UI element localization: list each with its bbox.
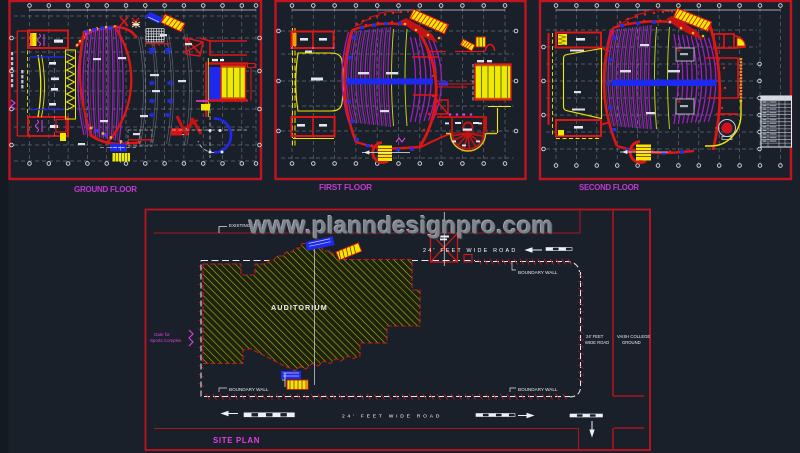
svg-text:24' FEET WIDE ROAD: 24' FEET WIDE ROAD — [423, 248, 517, 254]
svg-text:WIDE ROAD: WIDE ROAD — [585, 340, 609, 345]
svg-text:Gate for: Gate for — [154, 332, 170, 337]
svg-text:SITE PLAN: SITE PLAN — [213, 436, 260, 445]
svg-text:VAISH COLLEGE: VAISH COLLEGE — [617, 334, 650, 339]
svg-text:Sports Complex: Sports Complex — [150, 338, 182, 343]
svg-text:www.planndesignpro.com: www.planndesignpro.com — [248, 212, 554, 239]
svg-text:AUDITORIUM: AUDITORIUM — [271, 303, 328, 312]
svg-text:24' FEET WIDE ROAD: 24' FEET WIDE ROAD — [342, 414, 442, 420]
svg-text:FIRST FLOOR: FIRST FLOOR — [319, 183, 372, 192]
svg-text:GROUND FLOOR: GROUND FLOOR — [74, 185, 137, 194]
svg-text:BOUNDARY WALL: BOUNDARY WALL — [229, 387, 269, 392]
svg-text:GROUND: GROUND — [622, 340, 641, 345]
svg-text:BOUNDARY WALL: BOUNDARY WALL — [518, 387, 558, 392]
svg-text:BOUNDARY WALL: BOUNDARY WALL — [518, 270, 558, 275]
svg-text:24' FEET: 24' FEET — [586, 334, 604, 339]
svg-text:SECOND FLOOR: SECOND FLOOR — [579, 183, 639, 192]
